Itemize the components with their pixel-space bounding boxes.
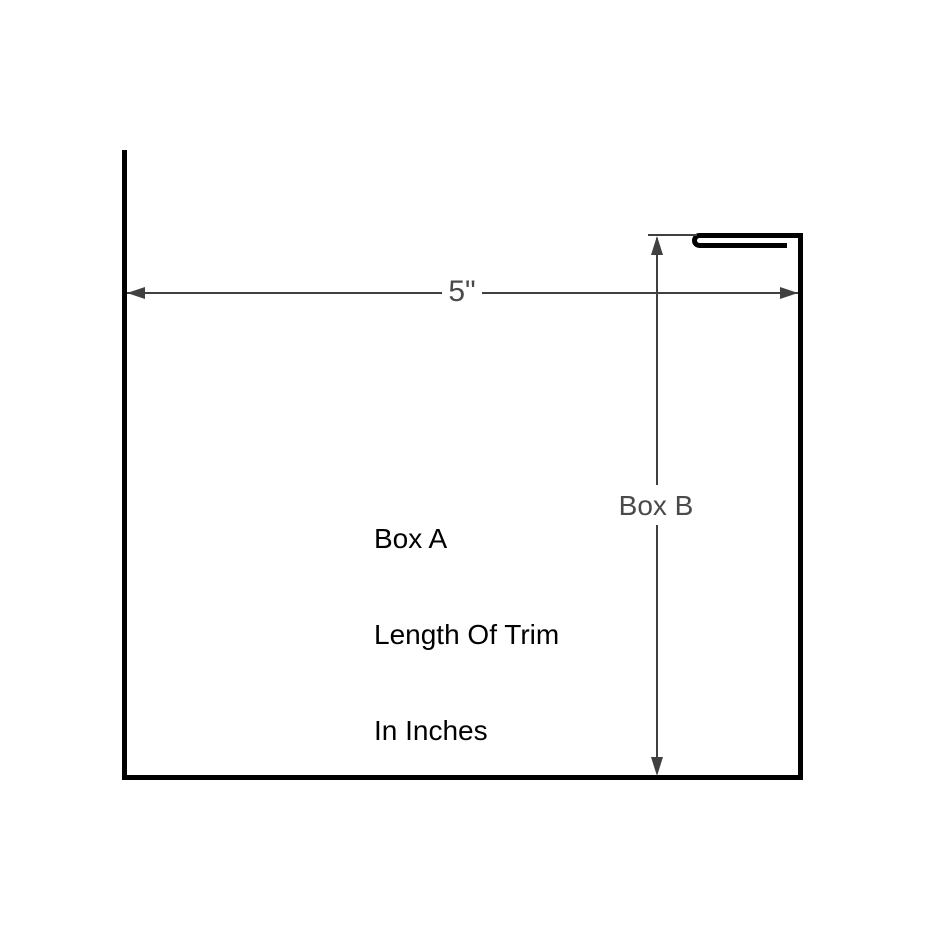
width-dimension-line-right-segment xyxy=(482,292,798,294)
height-dimension-down-arrow-icon xyxy=(651,757,663,776)
width-dimension-left-arrow-icon xyxy=(127,287,145,299)
height-dimension-line-lower-segment xyxy=(656,525,658,773)
box-a-annotation-line3: In Inches xyxy=(374,715,559,747)
box-a-annotation-line1: Box A xyxy=(374,523,559,555)
width-dimension-right-arrow-icon xyxy=(780,287,798,299)
height-dimension-line-upper-segment xyxy=(656,238,658,485)
profile-left-line xyxy=(122,150,127,780)
height-dimension-up-arrow-icon xyxy=(651,236,663,255)
trim-profile-drawing-canvas: 5" Box B Box A Length Of Trim In Inches xyxy=(0,0,929,930)
box-a-annotation-line2: Length Of Trim xyxy=(374,619,559,651)
box-a-annotation: Box A Length Of Trim In Inches xyxy=(374,459,559,811)
profile-right-line xyxy=(798,233,803,780)
box-b-label: Box B xyxy=(606,492,706,520)
profile-hem-top-extension xyxy=(782,233,803,238)
width-dimension-label: 5" xyxy=(432,277,492,307)
width-dimension-line-left-segment xyxy=(127,292,442,294)
profile-hem-hook xyxy=(692,233,787,248)
